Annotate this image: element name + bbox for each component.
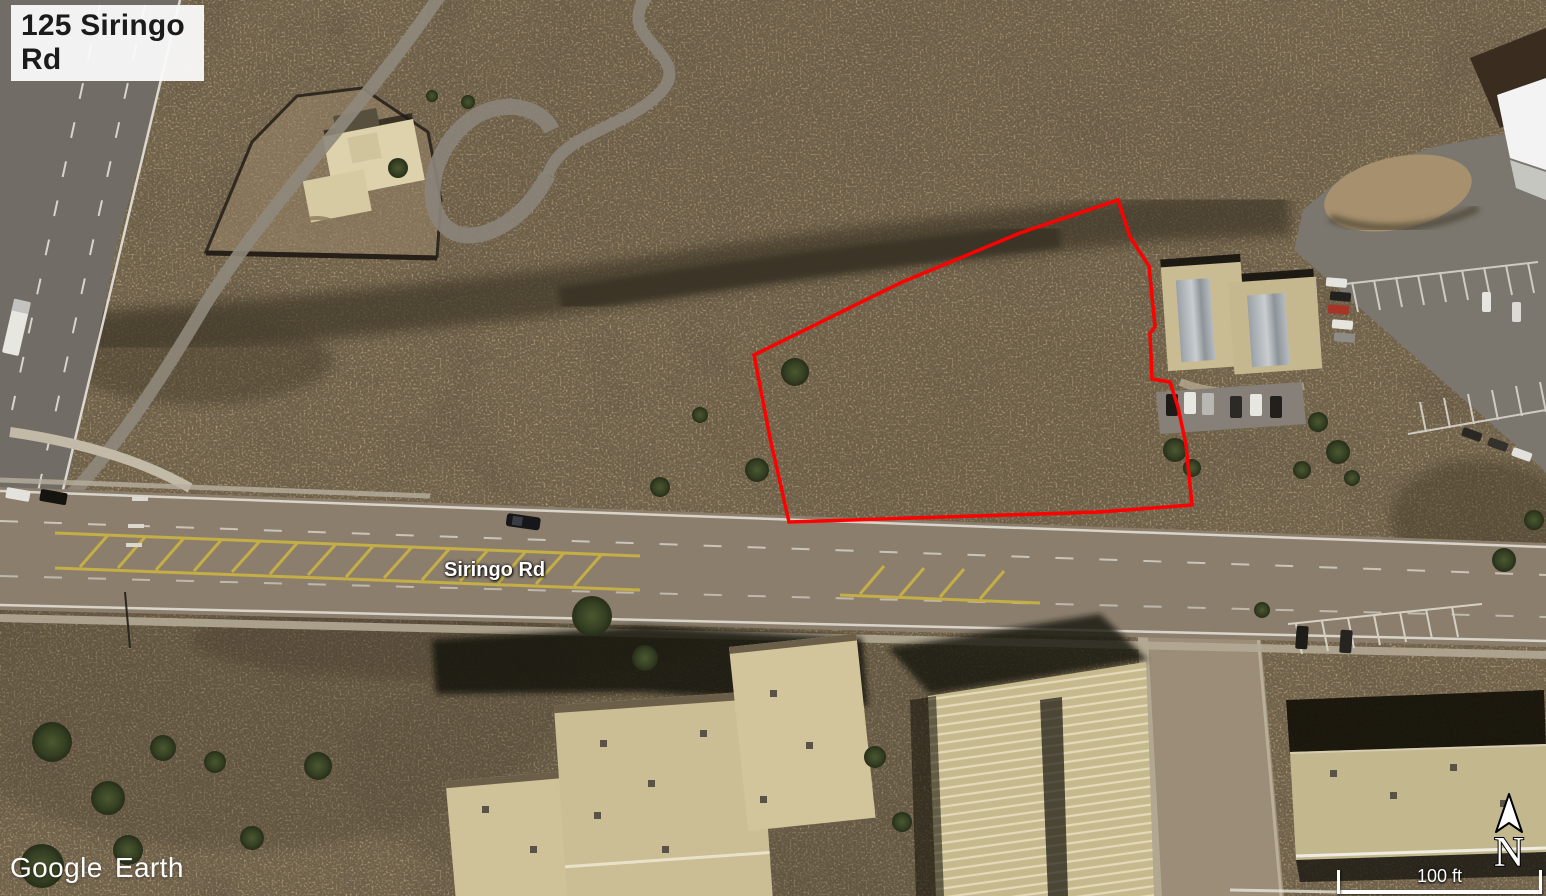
scale-tick-left <box>1337 870 1340 894</box>
apartments-terraced <box>888 614 1154 896</box>
scale-label: 100 ft <box>1337 866 1542 887</box>
address-label: 125 Siringo Rd <box>21 9 204 77</box>
scale-line <box>1337 890 1542 894</box>
address-label-box: 125 Siringo Rd <box>11 5 204 81</box>
scale-tick-right <box>1539 870 1542 894</box>
scale-bar: 100 ft <box>1337 868 1542 894</box>
north-arrow-icon <box>1496 794 1522 832</box>
north-compass: N <box>1486 792 1532 872</box>
aerial-map[interactable] <box>0 0 1546 896</box>
road-name-label: Siringo Rd <box>444 559 545 582</box>
google-earth-view: 125 Siringo Rd Siringo Rd Google Earth N… <box>0 0 1546 896</box>
google-earth-watermark: Google Earth <box>10 852 184 884</box>
clinic-building <box>1156 249 1322 434</box>
